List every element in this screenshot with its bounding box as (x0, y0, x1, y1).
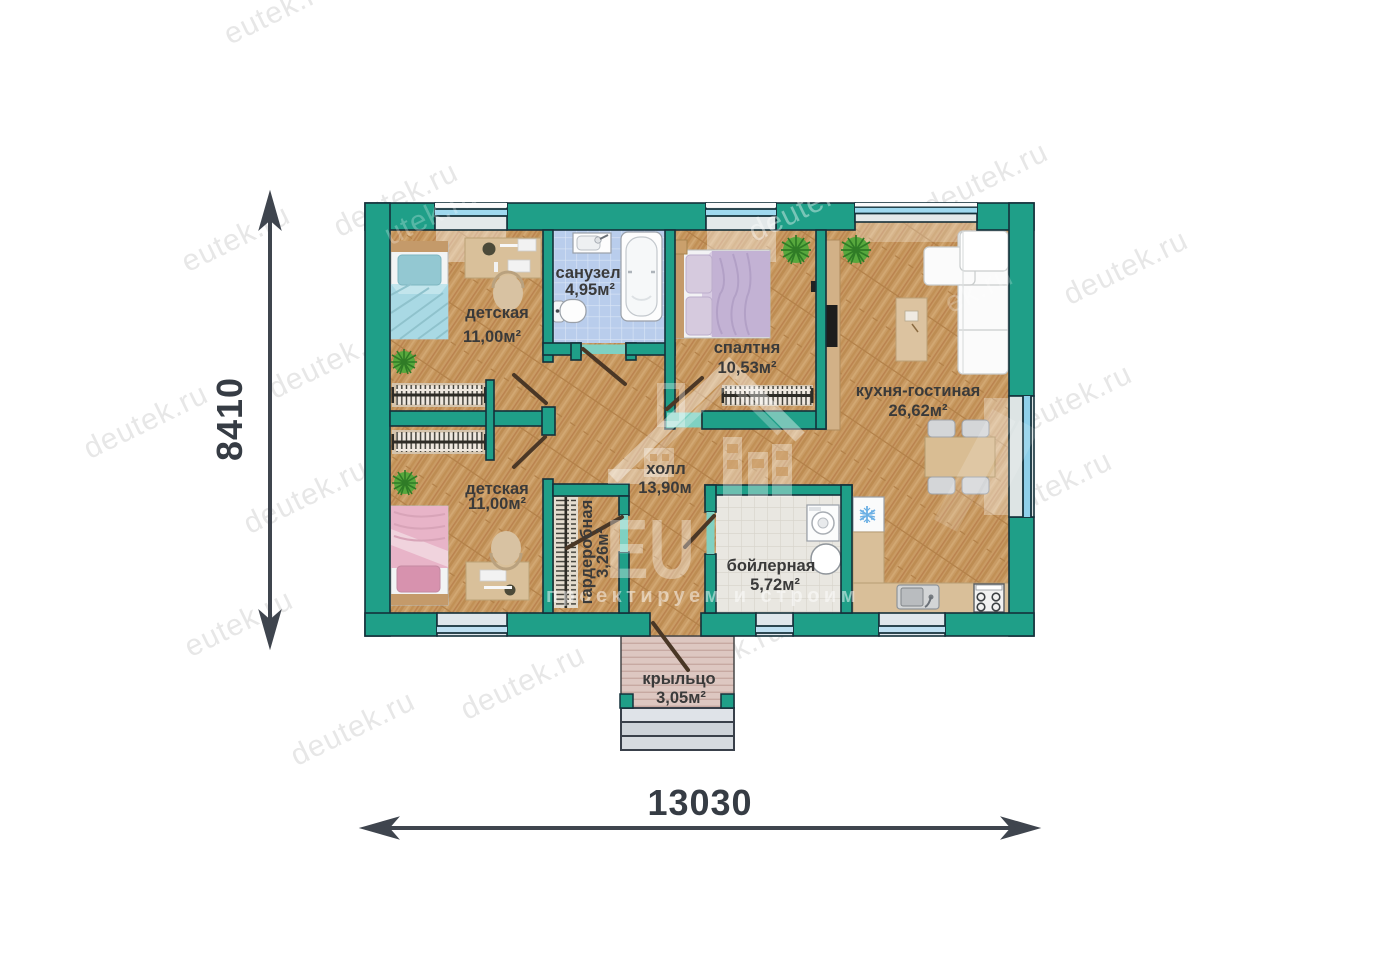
svg-text:детская: детская (465, 304, 529, 322)
svg-text:кухня-гостиная: кухня-гостиная (856, 382, 981, 400)
svg-text:11,00м²: 11,00м² (463, 328, 522, 346)
svg-text:5,72м²: 5,72м² (750, 576, 800, 594)
svg-text:10,53м²: 10,53м² (718, 359, 777, 377)
svg-text:26,62м²: 26,62м² (889, 402, 948, 420)
svg-text:санузел: санузел (555, 264, 620, 282)
svg-text:холл: холл (646, 460, 685, 478)
svg-text:8410: 8410 (209, 377, 250, 461)
svg-text:крыльцо: крыльцо (642, 670, 715, 688)
svg-text:3,05м²: 3,05м² (656, 689, 706, 707)
svg-text:13,90м: 13,90м (638, 479, 692, 497)
svg-text:11,00м²: 11,00м² (468, 495, 527, 513)
svg-text:спалтня: спалтня (714, 339, 780, 357)
svg-text:EU: EU (606, 501, 695, 596)
svg-text:4,95м²: 4,95м² (565, 281, 615, 299)
svg-text:бойлерная: бойлерная (727, 557, 816, 575)
svg-text:13030: 13030 (647, 782, 752, 823)
svg-text:3,26м²: 3,26м² (594, 528, 612, 578)
